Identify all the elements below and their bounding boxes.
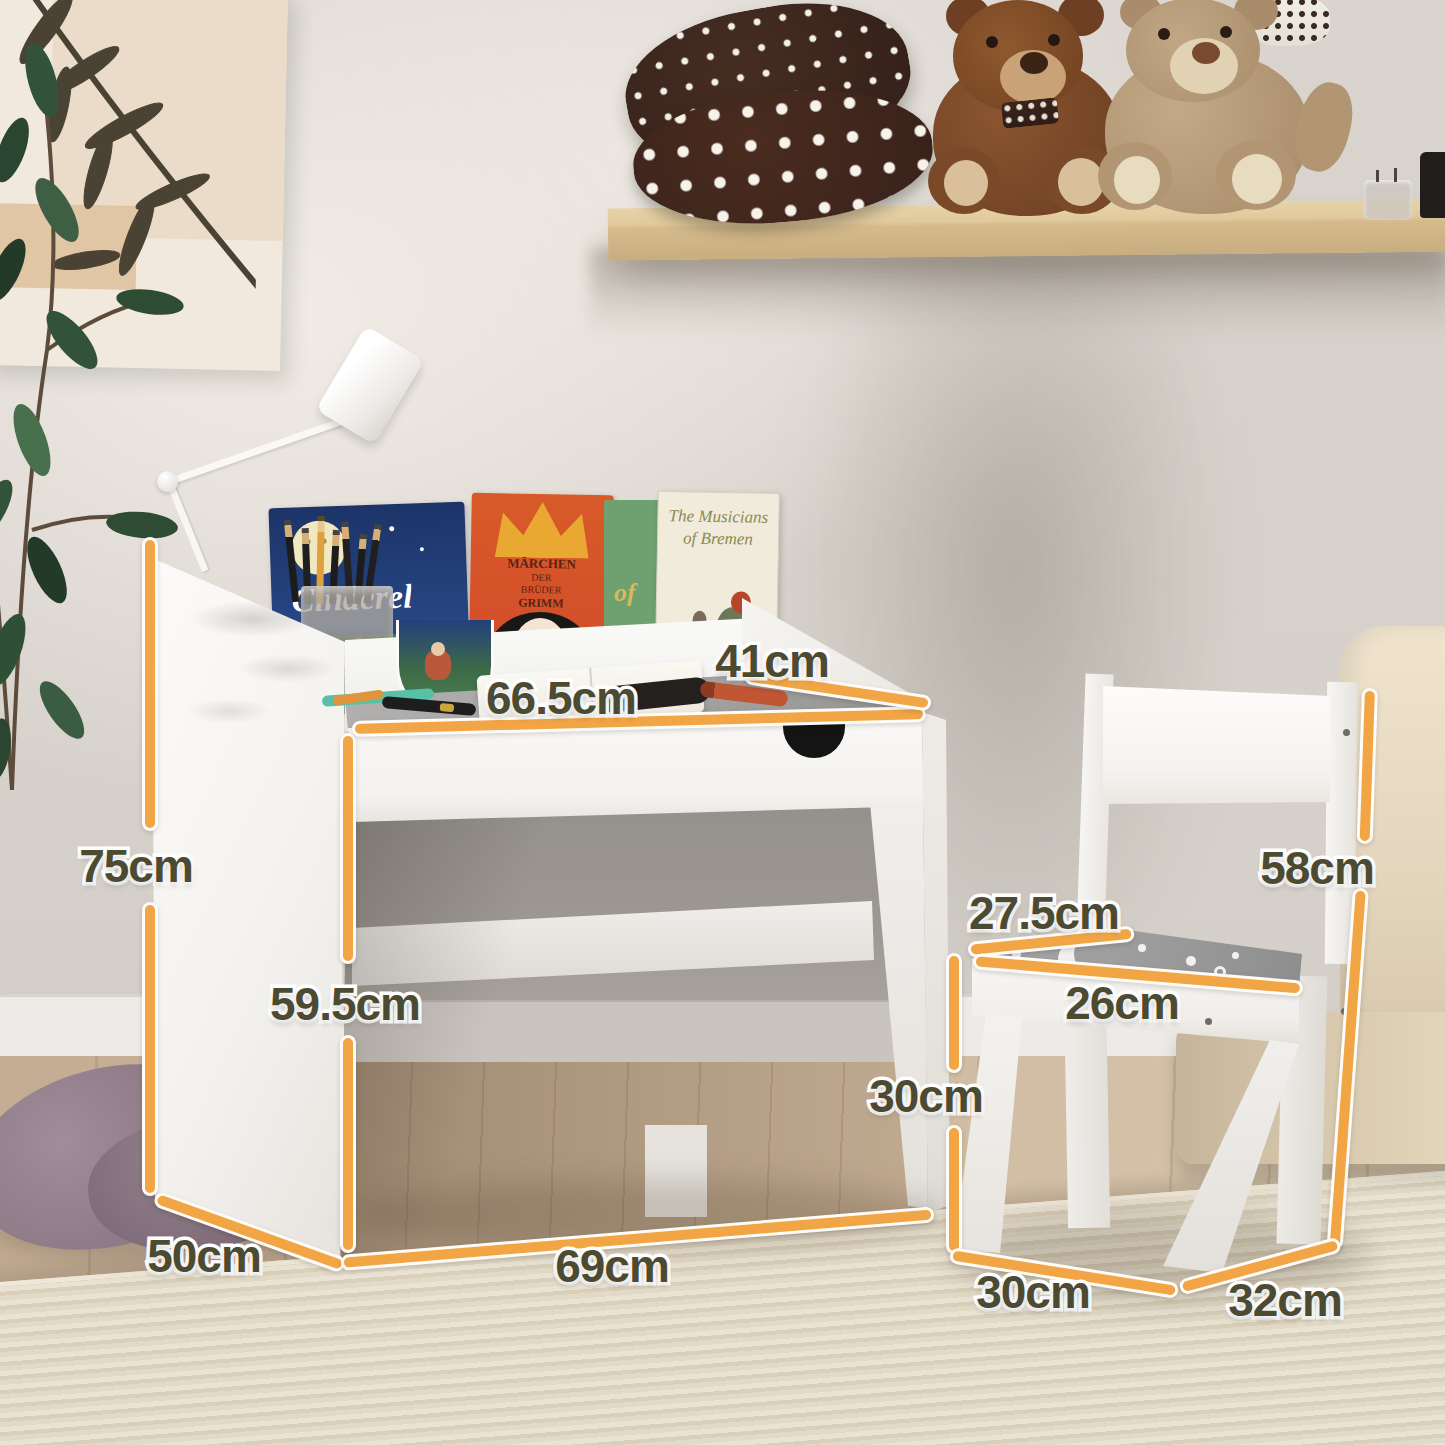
label-desk-top-depth: 41cm bbox=[715, 638, 829, 684]
chair-back-panel bbox=[1101, 682, 1333, 808]
lamp-joint bbox=[157, 471, 178, 492]
glass-candle bbox=[1364, 180, 1412, 220]
label-desk-clearance: 59.5cm bbox=[270, 981, 420, 1027]
label-desk-base-depth: 50cm bbox=[147, 1233, 261, 1279]
screw bbox=[1205, 1018, 1212, 1025]
black-mug bbox=[1420, 152, 1445, 218]
line-desk-clearance-lower bbox=[340, 1035, 356, 1253]
line-chair-seat-height-lower bbox=[946, 1125, 962, 1254]
desk-left-panel bbox=[150, 555, 347, 1265]
label-desk-base-width: 69cm bbox=[555, 1243, 669, 1289]
line-desk-height-lower bbox=[142, 902, 158, 1196]
label-chair-back-height: 58cm bbox=[1260, 845, 1374, 891]
label-chair-base-width: 30cm bbox=[976, 1269, 1090, 1315]
wall-shadow-under-shelf bbox=[590, 248, 1445, 338]
label-chair-seat-depth: 27.5cm bbox=[969, 890, 1119, 936]
label-chair-base-depth: 32cm bbox=[1228, 1277, 1342, 1323]
label-chair-seat-height: 30cm bbox=[869, 1073, 983, 1119]
label-chair-seat-width: 26cm bbox=[1065, 980, 1179, 1026]
line-desk-height-upper bbox=[142, 537, 158, 831]
screw bbox=[1343, 729, 1350, 736]
line-desk-clearance-upper bbox=[340, 733, 356, 964]
label-desk-height: 75cm bbox=[79, 843, 193, 889]
product-scene: Cinderella MÄRCHEN DER BRÜDER GRIMM of T… bbox=[0, 0, 1445, 1445]
label-desk-top-width: 66.5cm bbox=[486, 675, 636, 721]
line-chair-seat-height-upper bbox=[946, 953, 962, 1073]
